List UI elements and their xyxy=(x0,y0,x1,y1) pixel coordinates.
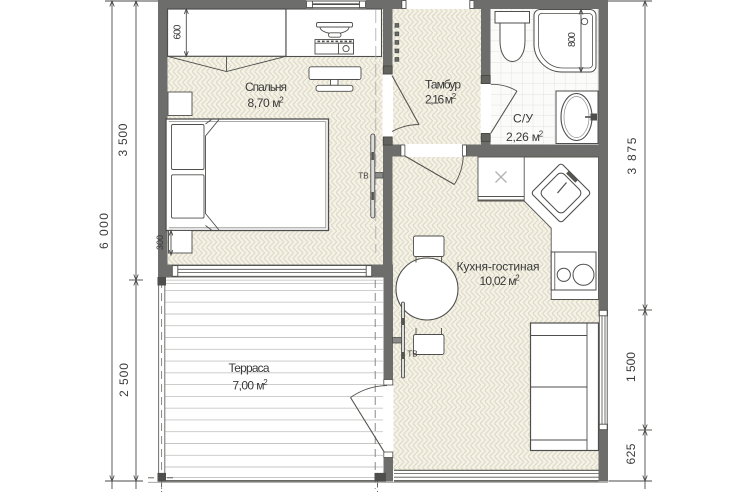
svg-text:7,00 м: 7,00 м xyxy=(233,379,265,393)
svg-text:2: 2 xyxy=(279,96,284,105)
svg-text:2: 2 xyxy=(263,378,268,387)
svg-text:2: 2 xyxy=(452,92,457,101)
svg-text:10,02 м: 10,02 м xyxy=(480,274,517,288)
svg-text:ТВ: ТВ xyxy=(407,350,417,359)
svg-text:300: 300 xyxy=(155,235,165,250)
svg-text:ТВ: ТВ xyxy=(358,172,368,181)
svg-text:600: 600 xyxy=(173,24,184,39)
svg-text:Кухня-гостиная: Кухня-гостиная xyxy=(457,260,540,274)
svg-text:2: 2 xyxy=(515,274,520,283)
svg-text:С/У: С/У xyxy=(513,112,533,126)
svg-text:6 000: 6 000 xyxy=(97,213,111,249)
svg-text:3 875: 3 875 xyxy=(625,137,639,174)
svg-text:2,26 м: 2,26 м xyxy=(506,130,540,144)
svg-text:1 500: 1 500 xyxy=(624,352,638,382)
svg-text:Терраса: Терраса xyxy=(229,361,270,375)
svg-text:2: 2 xyxy=(539,130,544,139)
svg-text:625: 625 xyxy=(624,443,638,464)
svg-text:800: 800 xyxy=(567,32,578,47)
svg-text:2,16 м: 2,16 м xyxy=(425,93,453,107)
svg-text:8,70 м: 8,70 м xyxy=(248,96,281,110)
svg-text:2 500: 2 500 xyxy=(117,363,131,397)
svg-text:Спальня: Спальня xyxy=(245,80,287,94)
svg-text:3 500: 3 500 xyxy=(116,123,130,156)
svg-text:Тамбур: Тамбур xyxy=(425,78,461,92)
